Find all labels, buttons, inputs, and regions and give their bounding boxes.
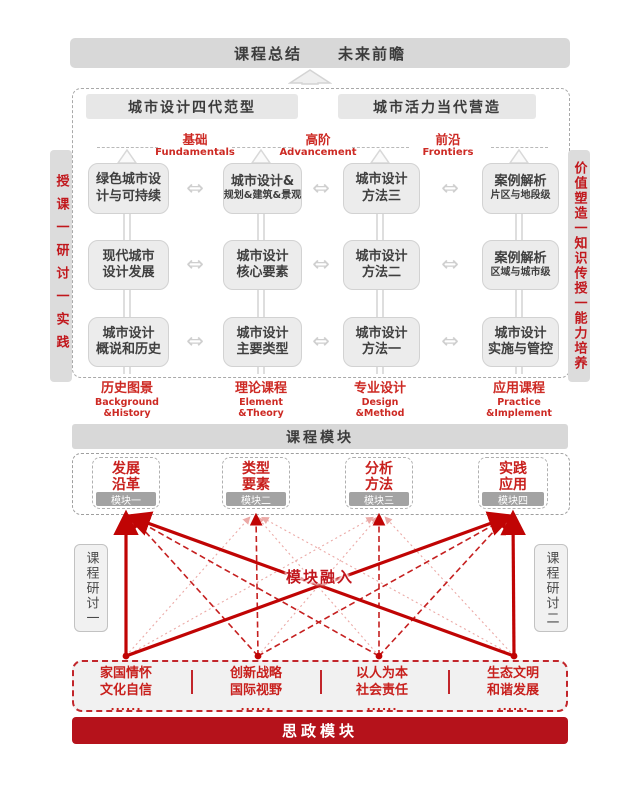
course-box-method-three: 城市设计 方法三 — [343, 163, 420, 214]
sidebar-teaching-methods: 授课一研讨一实践 — [50, 150, 72, 382]
module-integration-label: 模块融入 — [250, 566, 390, 587]
ideology-item-patriotism: 家国情怀 文化自信 ...... — [76, 666, 176, 712]
footer-zh: 理论课程 — [235, 381, 287, 397]
level-label-advancement: 高阶 Advancement — [263, 133, 373, 159]
course-box-line2: 主要类型 — [236, 342, 288, 358]
ideology-separator — [448, 670, 450, 694]
course-box-implementation-control: 城市设计 实施与管控 — [482, 317, 559, 367]
course-summary-label: 课程总结 — [234, 43, 302, 64]
course-box-main-types: 城市设计 主要类型 — [223, 317, 302, 367]
sidebar-right-label: 价值塑造一知识传授一能力培养 — [570, 161, 589, 371]
course-box-line2: 方法三 — [362, 189, 401, 205]
module-line1: 发展 — [112, 461, 140, 477]
footer-en1: Practice — [497, 398, 541, 409]
column-footer-history: 历史图景 Background &History — [72, 381, 182, 419]
course-box-line1: 城市设计 — [102, 326, 154, 342]
course-box-green-urban-design: 绿色城市设 计与可持续 — [88, 163, 169, 214]
seminar-two-label: 课程研讨二 — [542, 551, 561, 626]
course-box-line1: 城市设计 — [494, 326, 546, 342]
footer-en2: &Theory — [238, 409, 283, 420]
footer-en1: Background — [95, 398, 159, 409]
footer-zh: 应用课程 — [493, 381, 545, 397]
hollow-up-arrow-icon — [370, 149, 390, 164]
ideology-item-innovation: 创新战略 国际视野 ...... — [206, 666, 306, 712]
ideology-module-bar: 思政模块 — [72, 717, 568, 744]
ideology-item-people-first: 以人为本 社会责任 ...... — [332, 666, 432, 712]
course-box-line2: 概说和历史 — [96, 342, 161, 358]
ideology-separator — [191, 670, 193, 694]
level-en: Frontiers — [423, 147, 474, 159]
module-practice-application: 实践 应用 模块四 — [478, 457, 548, 509]
double-arrow-icon: ⇔ — [181, 176, 209, 200]
footer-en1: Element — [239, 398, 283, 409]
course-box-line2: 方法二 — [362, 265, 401, 281]
hollow-up-arrow-icon — [117, 149, 137, 164]
ideology-line1: 家国情怀 — [100, 666, 152, 683]
column-footer-design: 专业设计 Design &Method — [325, 381, 435, 419]
ideology-dots: ...... — [366, 701, 397, 712]
double-arrow-icon: ⇔ — [436, 329, 464, 353]
course-box-line2: 规划&建筑&景观 — [224, 190, 301, 203]
ideology-module-bar-label: 思政模块 — [282, 720, 358, 741]
module-line1: 实践 — [499, 461, 527, 477]
course-box-line1: 案例解析 — [494, 174, 546, 190]
module-tag: 模块四 — [482, 492, 544, 506]
course-box-line1: 现代城市 — [102, 249, 154, 265]
paradigm-header-left-label: 城市设计四代范型 — [128, 97, 256, 117]
double-arrow-icon: ⇔ — [181, 252, 209, 276]
course-box-line1: 城市设计 — [236, 249, 288, 265]
course-box-line1: 城市设计& — [231, 174, 294, 190]
footer-en2: &History — [103, 409, 150, 420]
ideology-dots: ...... — [240, 701, 271, 712]
paradigm-header-right: 城市活力当代营造 — [338, 94, 536, 119]
course-box-line1: 案例解析 — [494, 251, 546, 267]
course-box-line2: 实施与管控 — [488, 342, 553, 358]
double-arrow-icon: ⇔ — [307, 329, 335, 353]
footer-zh: 专业设计 — [354, 381, 406, 397]
course-box-line2: 区域与城市级 — [491, 267, 551, 280]
course-box-line1: 城市设计 — [355, 326, 407, 342]
sidebar-education-goals: 价值塑造一知识传授一能力培养 — [568, 150, 590, 382]
course-box-case-district: 案例解析 片区与地段级 — [482, 163, 559, 214]
ideology-separator — [320, 670, 322, 694]
level-label-frontiers: 前沿 Frontiers — [393, 133, 503, 159]
up-block-arrow-icon — [288, 69, 332, 85]
course-box-line1: 城市设计 — [355, 249, 407, 265]
level-en: Advancement — [279, 147, 356, 159]
seminar-one-label: 课程研讨一 — [82, 551, 101, 626]
course-module-bar: 课程模块 — [72, 424, 568, 449]
course-box-line1: 城市设计 — [355, 172, 407, 188]
ideology-item-ecology: 生态文明 和谐发展 ...... — [463, 666, 563, 712]
module-line1: 类型 — [242, 461, 270, 477]
level-zh: 高阶 — [305, 133, 330, 147]
module-tag: 模块一 — [96, 492, 156, 506]
ideology-line2: 文化自信 — [100, 683, 152, 700]
course-summary-bar: 课程总结 未来前瞻 — [70, 38, 570, 68]
sidebar-left-label: 授课一研讨一实践 — [52, 174, 71, 358]
level-zh: 基础 — [182, 133, 207, 147]
footer-en2: &Implement — [486, 409, 552, 420]
course-module-bar-label: 课程模块 — [286, 427, 354, 447]
level-zh: 前沿 — [435, 133, 460, 147]
double-arrow-icon: ⇔ — [436, 176, 464, 200]
ideology-dots: ...... — [110, 701, 141, 712]
ideology-dots: ...... — [497, 701, 528, 712]
module-tag: 模块三 — [349, 492, 409, 506]
course-box-line1: 绿色城市设 — [96, 172, 161, 188]
module-tag: 模块二 — [226, 492, 286, 506]
hollow-up-arrow-icon — [509, 149, 529, 164]
double-arrow-icon: ⇔ — [181, 329, 209, 353]
double-arrow-icon: ⇔ — [307, 176, 335, 200]
course-box-case-regional: 案例解析 区域与城市级 — [482, 240, 559, 290]
course-box-core-elements: 城市设计 核心要素 — [223, 240, 302, 290]
future-outlook-label: 未来前瞻 — [338, 43, 406, 64]
module-line1: 分析 — [365, 461, 393, 477]
level-en: Fundamentals — [155, 147, 235, 159]
double-arrow-icon: ⇔ — [436, 252, 464, 276]
course-box-line2: 方法一 — [362, 342, 401, 358]
ideology-line1: 以人为本 — [356, 666, 408, 683]
ideology-line1: 创新战略 — [230, 666, 282, 683]
course-box-line2: 核心要素 — [236, 265, 288, 281]
course-box-ud-planning-arch-landscape: 城市设计& 规划&建筑&景观 — [223, 163, 302, 214]
course-box-method-one: 城市设计 方法一 — [343, 317, 420, 367]
footer-zh: 历史图景 — [101, 381, 153, 397]
ideology-line2: 和谐发展 — [487, 683, 539, 700]
course-box-overview-history: 城市设计 概说和历史 — [88, 317, 169, 367]
course-box-line2: 片区与地段级 — [491, 190, 551, 203]
ideology-line2: 国际视野 — [230, 683, 282, 700]
hollow-up-arrow-icon — [251, 149, 271, 164]
course-box-method-two: 城市设计 方法二 — [343, 240, 420, 290]
footer-en2: &Method — [356, 409, 405, 420]
ideology-line1: 生态文明 — [487, 666, 539, 683]
module-analysis-methods: 分析 方法 模块三 — [345, 457, 413, 509]
course-structure-diagram: 课程总结 未来前瞻 城市设计四代范型 城市活力当代营造 基础 Fundament… — [0, 0, 639, 796]
module-development-evolution: 发展 沿革 模块一 — [92, 457, 160, 509]
paradigm-header-right-label: 城市活力当代营造 — [373, 97, 501, 117]
level-label-fundamentals: 基础 Fundamentals — [140, 133, 250, 159]
double-arrow-icon: ⇔ — [307, 252, 335, 276]
course-seminar-two: 课程研讨二 — [534, 544, 568, 632]
column-footer-theory: 理论课程 Element &Theory — [206, 381, 316, 419]
ideology-line2: 社会责任 — [356, 683, 408, 700]
course-seminar-one: 课程研讨一 — [74, 544, 108, 632]
course-box-line1: 城市设计 — [236, 326, 288, 342]
course-box-line2: 计与可持续 — [96, 189, 161, 205]
paradigm-header-left: 城市设计四代范型 — [86, 94, 298, 119]
footer-en1: Design — [362, 398, 399, 409]
module-type-elements: 类型 要素 模块二 — [222, 457, 290, 509]
course-box-modern-ud-development: 现代城市 设计发展 — [88, 240, 169, 290]
column-footer-practice: 应用课程 Practice &Implement — [464, 381, 574, 419]
course-box-line2: 设计发展 — [102, 265, 154, 281]
